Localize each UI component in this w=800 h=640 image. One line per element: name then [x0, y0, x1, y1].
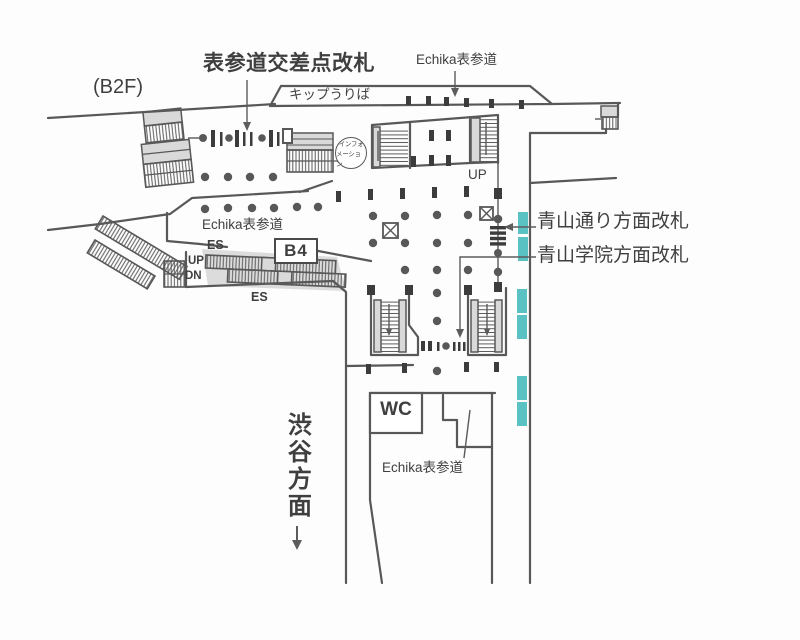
es-lower-label: ES: [251, 291, 268, 305]
up-center-label: UP: [468, 168, 487, 183]
dn-left-label: DN: [185, 270, 202, 283]
b4-exit-badge: B4: [274, 238, 318, 264]
aoyama-dori-gate-label: 青山通り方面改札: [537, 212, 689, 233]
shibuya-direction-arrow: [292, 526, 302, 550]
echika-lower-label: Echika表参道: [382, 461, 463, 476]
ticket-gate-main: [188, 129, 292, 147]
echika-top-label: Echika表参道: [416, 53, 497, 68]
echika-left-label: Echika表参道: [202, 218, 283, 233]
ticket-machines: [406, 96, 524, 109]
info-line2: メーション: [336, 148, 366, 168]
es-upper-label: ES: [207, 239, 224, 253]
pointer-echika-lower: [464, 410, 470, 458]
elevator-icon: [480, 207, 493, 220]
information-booth-icon: インフォ メーション: [335, 137, 367, 169]
stairs-lower-center-right: [468, 288, 506, 355]
elevator-icon-2: [383, 223, 398, 238]
pointer-echika-top: [451, 71, 459, 97]
ticket-gate-aoyama-gakuin: [421, 341, 466, 351]
wc-label: WC: [370, 400, 422, 421]
platform-access-marks: [517, 212, 528, 426]
aoyama-gakuin-gate-label: 青山学院方面改札: [537, 246, 689, 267]
main-gate-label: 表参道交差点改札: [203, 52, 375, 75]
station-map: (B2F) 表参道交差点改札 Echika表参道 キップうりば インフォ メーシ…: [0, 0, 800, 640]
up-left-label: UP: [188, 255, 204, 268]
stairs-lower-center-left: [371, 288, 418, 355]
floor-label: (B2F): [93, 76, 143, 98]
ticket-office-label: キップうりば: [289, 88, 370, 103]
escalator-center-top: [287, 133, 338, 172]
stairs-upper-center: [372, 115, 498, 168]
info-line1: インフォ: [339, 138, 364, 148]
stairs-upper-left: [138, 108, 194, 188]
shibuya-direction-label: 渋谷方面: [283, 412, 309, 520]
stairs-small-right: [595, 103, 618, 129]
stairs-small-left: [164, 261, 185, 287]
